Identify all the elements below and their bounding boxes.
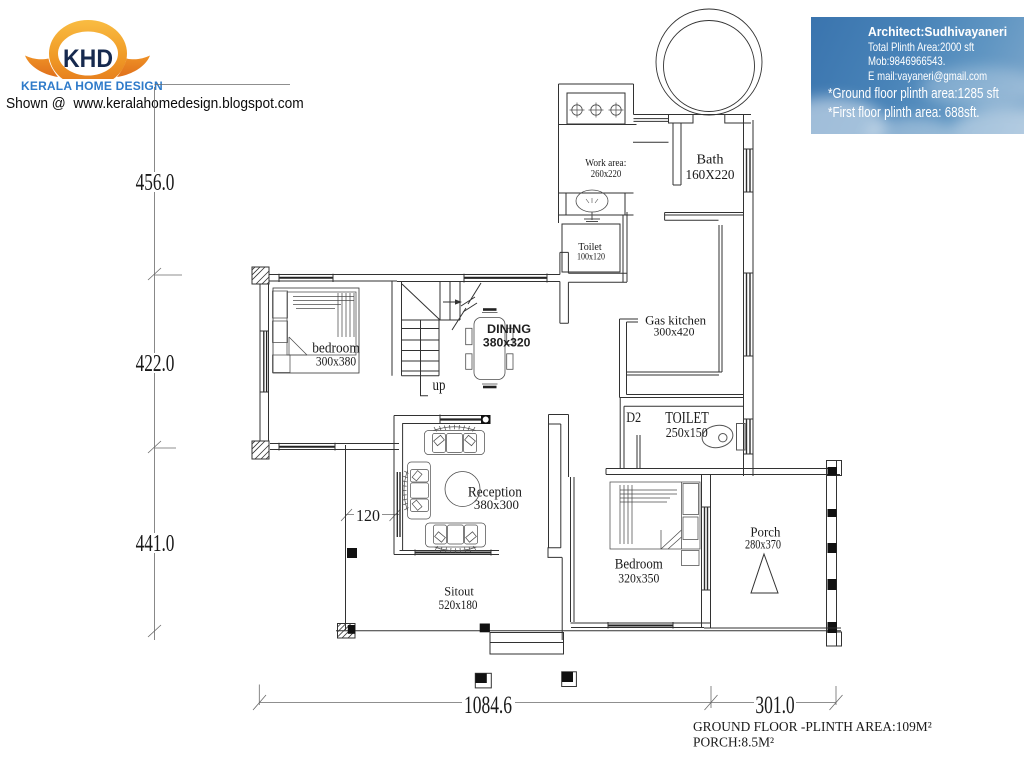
svg-text:D2: D2 [626,410,641,426]
svg-text:380x300: 380x300 [474,498,519,512]
svg-text:PORCH:8.5M²: PORCH:8.5M² [693,735,774,750]
svg-text:301.0: 301.0 [755,691,794,719]
svg-text:120: 120 [356,506,380,526]
svg-text:up: up [433,377,446,395]
svg-text:422.0: 422.0 [136,349,175,377]
svg-text:Work area:: Work area: [585,158,626,169]
svg-text:320x350: 320x350 [618,571,659,586]
svg-text:Bath: Bath [697,153,724,168]
svg-text:300x420: 300x420 [654,325,695,339]
svg-text:1084.6: 1084.6 [464,691,512,719]
svg-text:Sitout: Sitout [444,584,474,598]
svg-text:DINING: DINING [487,324,531,336]
svg-text:GROUND FLOOR -PLINTH AREA:109M: GROUND FLOOR -PLINTH AREA:109M² [693,719,932,734]
svg-text:260x220: 260x220 [591,169,622,180]
svg-text:520x180: 520x180 [439,598,478,612]
svg-text:100x120: 100x120 [577,253,605,263]
svg-text:456.0: 456.0 [136,168,175,196]
svg-text:Toilet: Toilet [578,242,602,253]
svg-text:160X220: 160X220 [686,168,735,183]
svg-text:250x150: 250x150 [666,425,708,440]
svg-text:300x380: 300x380 [316,354,356,369]
svg-text:441.0: 441.0 [136,529,175,557]
svg-text:380x320: 380x320 [483,338,531,350]
svg-text:280x370: 280x370 [745,538,781,552]
